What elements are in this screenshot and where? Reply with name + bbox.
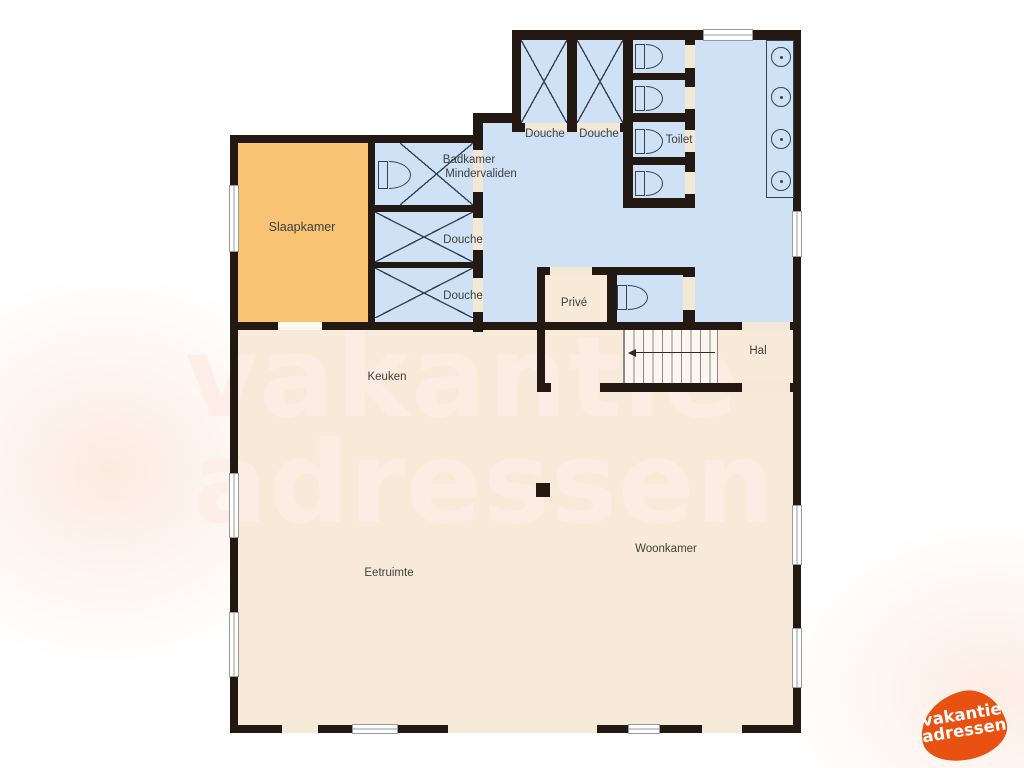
floorplan-canvas: vakantie adressen [0,0,1024,768]
wall [600,383,742,392]
wall [633,113,685,122]
door-opening [683,277,695,310]
window [229,185,239,252]
window [703,29,753,41]
wall [368,135,375,328]
room-label-douche-left-2: Douche [443,290,483,302]
door-opening [550,267,592,275]
door-opening [685,172,695,194]
sink-icon [771,87,791,107]
door-opening [702,725,742,733]
stair-direction-arrow-icon [630,352,715,353]
window [792,505,802,565]
room-label-prive: Privé [561,297,587,309]
window [229,473,239,538]
wall [537,383,551,392]
room-label-slaapkamer: Slaapkamer [269,220,336,234]
room-label-eetruimte: Eetruimte [364,567,413,579]
toilet-icon [635,44,663,69]
toilet-icon [635,171,663,196]
toilet-icon [617,285,648,310]
door-opening [282,725,318,733]
column-marker [536,483,550,497]
window [229,612,239,677]
shower-x-icon [577,40,623,123]
wall [623,30,633,208]
wall [623,198,695,208]
wall [537,322,545,392]
toilet-icon [635,129,663,154]
room-label-badkamer-line1: Badkamer [443,154,495,166]
room-label-douche-top-2: Douche [579,128,619,140]
wall [230,135,483,143]
room-label-keuken: Keuken [367,371,406,383]
toilet-icon [635,86,663,111]
sink-icon [771,171,791,191]
room-label-toilet: Toilet [666,134,693,146]
wall [537,267,545,330]
watermark-line-2: adressen [192,428,776,540]
door-opening [742,322,790,330]
room-label-badkamer-line2: Mindervaliden [445,168,517,180]
door-opening [685,45,695,68]
room-label-douche-left-1: Douche [443,234,483,246]
room-label-woonkamer: Woonkamer [635,543,697,555]
connector-floor [623,208,695,267]
door-opening [742,383,790,392]
door-opening [685,87,695,109]
wall [790,322,801,330]
window [792,211,802,257]
stairs [623,330,718,383]
door-opening [448,725,597,733]
sink-icon [771,129,791,149]
wall [633,157,685,165]
wall [537,267,550,275]
brand-logo: vakantie adressen [918,690,1008,762]
room-label-hal: Hal [749,345,766,357]
window [792,628,802,688]
window [352,724,398,734]
wall [512,30,801,40]
wall [368,205,483,212]
wall [512,30,521,132]
window [628,724,660,734]
wall [607,267,617,330]
room-label-douche-top-1: Douche [525,128,565,140]
toilet-icon [378,161,411,189]
shower-x-icon [521,40,567,123]
wall [567,30,577,132]
wall [790,383,801,392]
door-opening [278,322,322,330]
sink-icon [771,47,791,67]
wall [633,73,685,80]
